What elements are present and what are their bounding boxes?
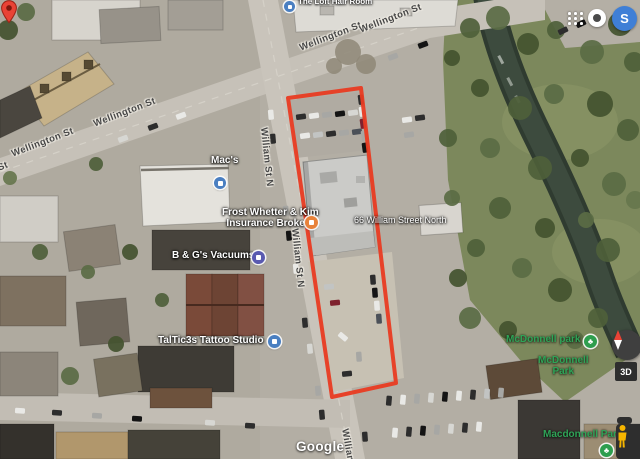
insurance-label-line1: Frost Whetter & Kim xyxy=(222,208,319,219)
insurance-label[interactable]: Frost Whetter & Kim Insurance Brokers xyxy=(222,208,319,229)
map-overlay: Wellington St Wellington St Wellington S… xyxy=(0,0,640,459)
collapsed-control[interactable] xyxy=(617,417,632,424)
macs-label[interactable]: Mac's xyxy=(211,156,238,167)
park-tree-icon[interactable]: ♣ xyxy=(584,335,597,348)
3d-toggle-button[interactable]: 3D xyxy=(615,362,637,381)
apps-grid-icon[interactable] xyxy=(568,12,583,27)
marker-address-label[interactable]: 66 William Street North xyxy=(354,216,447,225)
tattoo-studio-label[interactable]: TalTic3s Tattoo Studio xyxy=(158,336,264,347)
street-label-wellington-4: Wellington St xyxy=(358,3,423,36)
account-avatar[interactable]: S xyxy=(612,6,637,31)
map-pin-icon[interactable] xyxy=(0,0,18,24)
google-maps-satellite-view: Wellington St Wellington St Wellington S… xyxy=(0,0,640,459)
hair-salon-icon[interactable] xyxy=(284,1,295,12)
compass-needle-icon xyxy=(612,330,624,350)
vacuums-label[interactable]: B & G's Vacuums xyxy=(172,251,254,262)
street-label-william-2: William St N xyxy=(289,228,305,288)
vacuum-store-icon[interactable] xyxy=(252,251,265,264)
street-label-wellington-1: Wellington St xyxy=(10,127,75,160)
tattoo-studio-icon[interactable] xyxy=(268,335,281,348)
notification-icon[interactable] xyxy=(588,9,606,27)
park-label-2-line2: Park xyxy=(538,367,589,378)
pegman-icon xyxy=(616,424,629,448)
pegman-control[interactable] xyxy=(616,424,640,459)
street-label-wellington-2: Wellington St xyxy=(92,97,157,130)
street-label-wellington-3: Wellington St xyxy=(298,21,363,54)
google-logo[interactable]: Google xyxy=(296,439,344,454)
park-label-2-line1: McDonnell xyxy=(538,356,589,367)
park-label-2[interactable]: McDonnell Park xyxy=(538,356,589,377)
park-label-1[interactable]: McDonnell park xyxy=(506,335,580,346)
cutoff-business-label[interactable]: The Loft Hair Room xyxy=(298,0,372,6)
convenience-store-icon[interactable] xyxy=(214,177,226,189)
insurance-office-icon[interactable] xyxy=(305,216,318,229)
compass-control[interactable] xyxy=(612,330,640,360)
park-tree-icon-2[interactable]: ♣ xyxy=(600,444,613,457)
street-label-wellington-fragment: St xyxy=(0,160,10,173)
street-label-william-1: William St N xyxy=(258,127,274,187)
